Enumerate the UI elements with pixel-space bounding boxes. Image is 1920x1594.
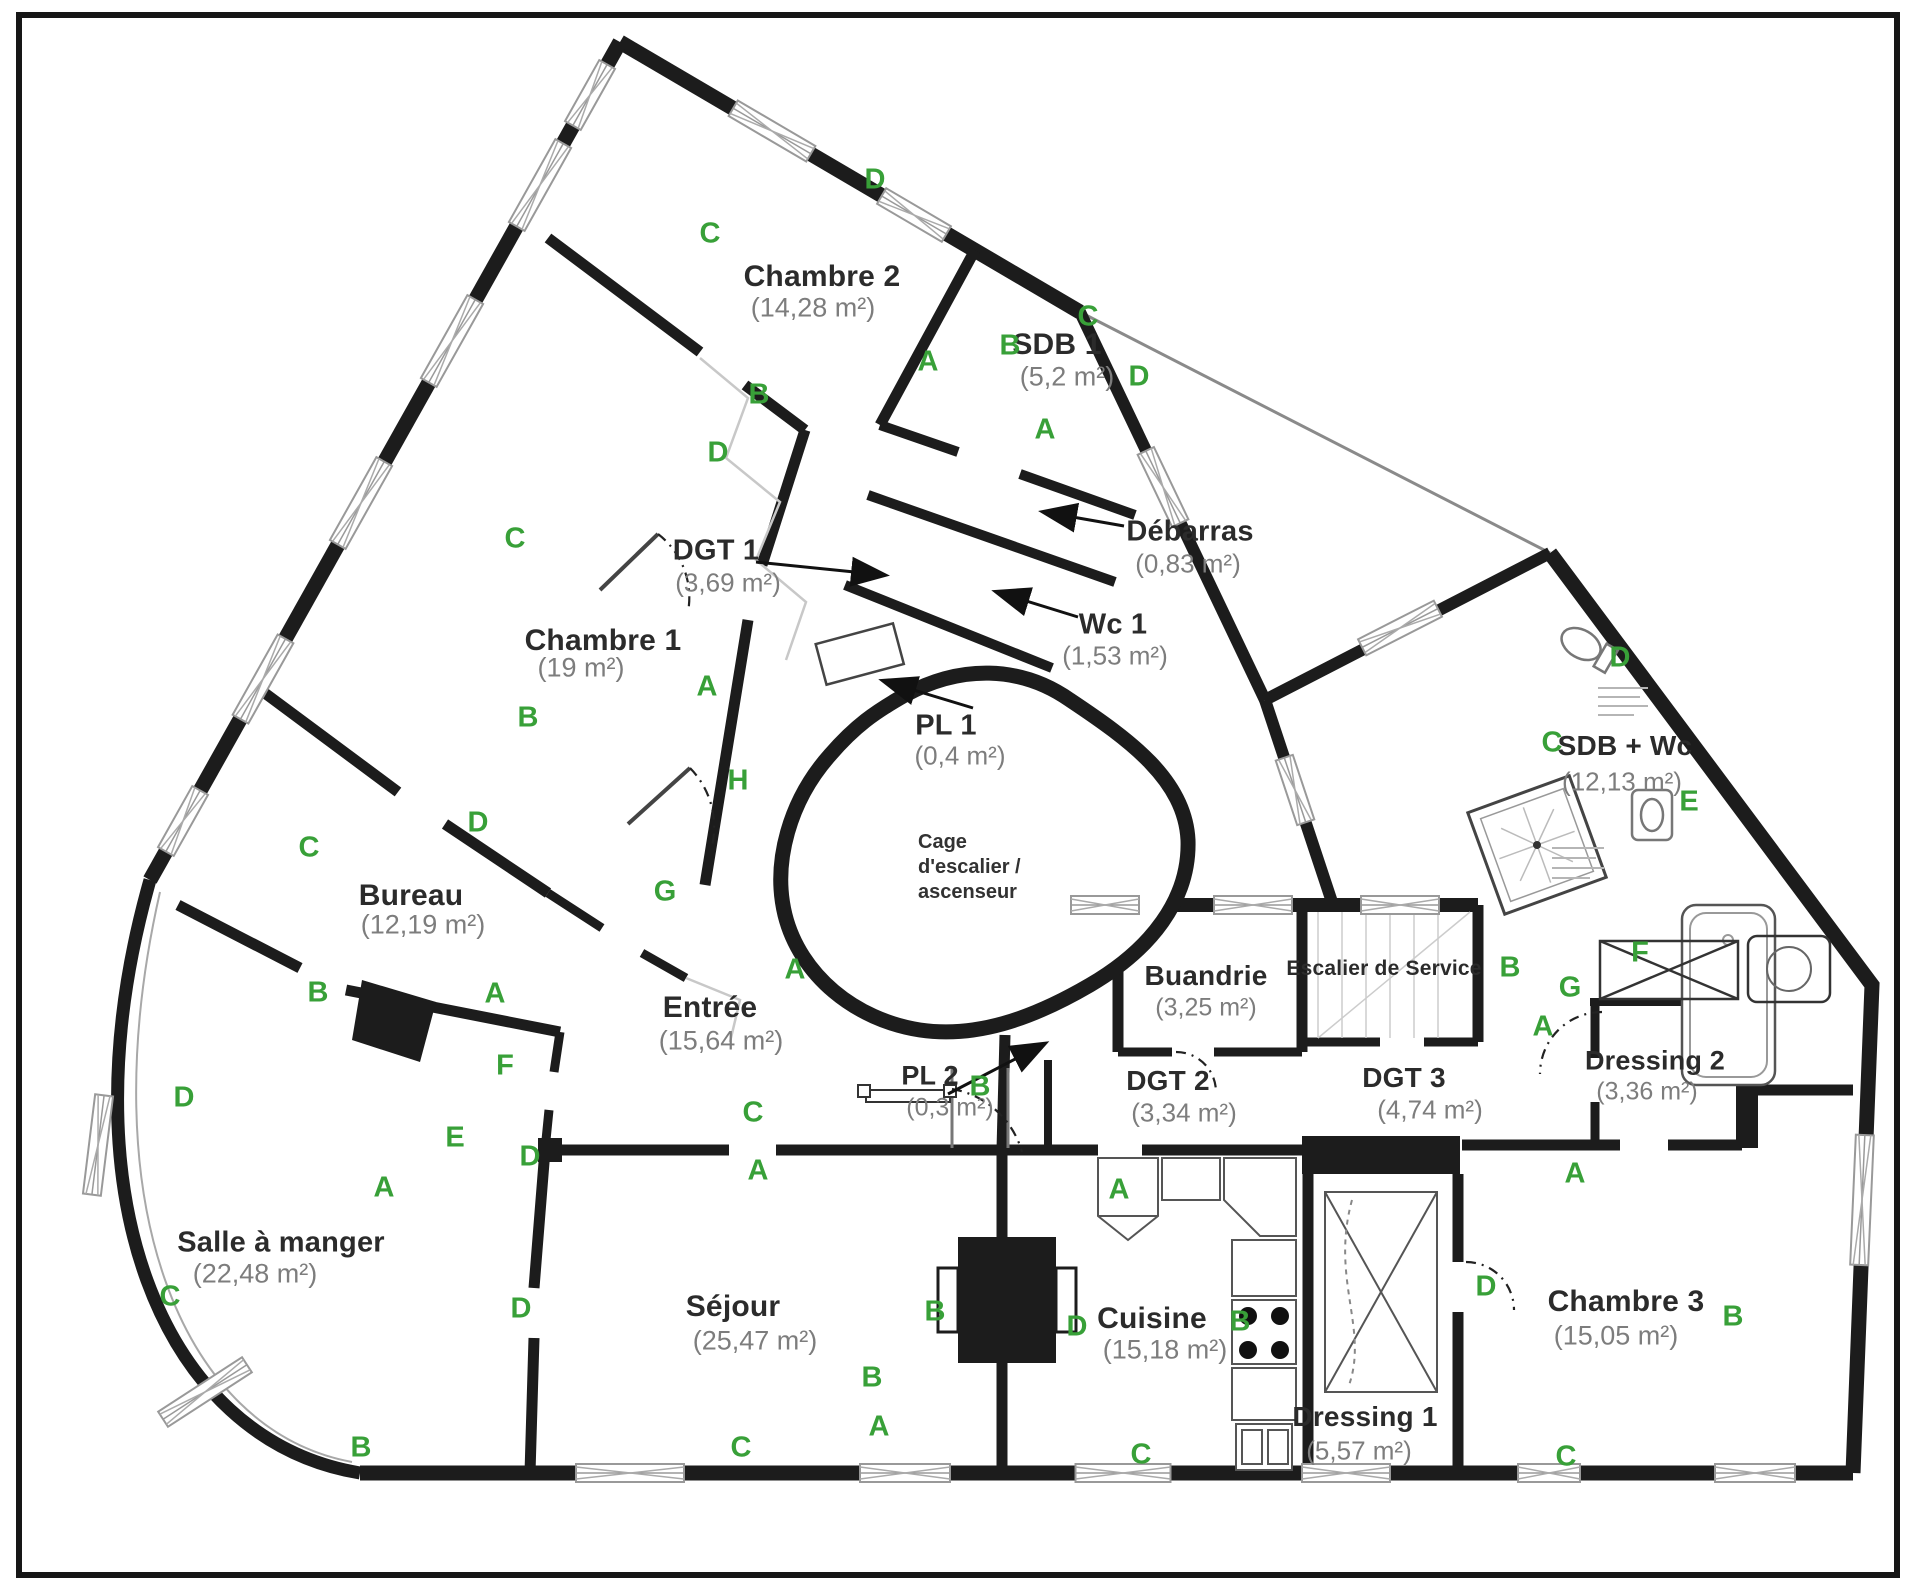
room-label-wc-1: Wc 1 [1079, 609, 1148, 642]
wall-letter-b-47: B [1723, 1301, 1744, 1334]
wall-letter-d-26: D [511, 1293, 532, 1326]
wall-letter-d-21: D [520, 1141, 541, 1174]
wall-letter-c-27: C [731, 1432, 752, 1465]
wall-letter-f-19: F [496, 1050, 514, 1083]
wall-letter-d-13: D [468, 807, 489, 840]
room-area-dgt-1: (3,69 m²) [675, 568, 780, 599]
wall-letter-a-16: A [785, 954, 806, 987]
room-area-sdb-1: (5,2 m²) [1020, 362, 1115, 393]
room-label-salle-a-manger: Salle à manger [177, 1227, 385, 1260]
room-area-dgt-3: (4,74 m²) [1377, 1095, 1482, 1126]
room-label-chambre-2: Chambre 2 [744, 260, 901, 294]
wall-letter-g-15: G [654, 876, 677, 909]
room-area-bureau: (12,19 m²) [361, 910, 486, 941]
wall-letter-d-8: D [708, 437, 729, 470]
room-label-dressing-1: Dressing 1 [1292, 1401, 1437, 1433]
wall-letter-b-30: B [925, 1296, 946, 1329]
room-area-buandrie: (3,25 m²) [1155, 994, 1256, 1023]
wall-letter-a-29: A [869, 1411, 890, 1444]
room-label-escalier-service: Escalier de Service [1286, 957, 1481, 981]
wall-letter-a-45: A [1565, 1158, 1586, 1191]
room-area-sejour: (25,47 m²) [693, 1326, 818, 1357]
room-area-salle-a-manger: (22,48 m²) [193, 1259, 318, 1290]
wall-letter-a-32: A [748, 1155, 769, 1188]
room-label-pl-2: PL 2 [901, 1061, 958, 1092]
wall-letter-a-34: A [1109, 1174, 1130, 1207]
room-label-dgt-2: DGT 2 [1126, 1065, 1209, 1097]
stair-core-label-line: d'escalier / [918, 855, 1021, 880]
room-area-chambre-3: (15,05 m²) [1554, 1321, 1679, 1352]
room-area-debarras: (0,83 m²) [1135, 549, 1240, 580]
wall-letter-e-44: E [1679, 786, 1698, 819]
room-label-entree: Entrée [663, 991, 758, 1025]
wall-letter-a-18: A [485, 978, 506, 1011]
room-label-sejour: Séjour [686, 1290, 781, 1324]
wall-letter-c-4: C [1078, 301, 1099, 334]
room-label-pl-1: PL 1 [915, 710, 977, 743]
room-area-sdb-wc: (12,13 m²) [1562, 767, 1682, 798]
wall-letter-f-41: F [1631, 937, 1649, 970]
wall-letter-b-38: B [1500, 952, 1521, 985]
room-label-sdb-wc: SDB + Wc [1558, 730, 1693, 762]
room-label-debarras: Débarras [1126, 516, 1253, 549]
wall-letter-d-43: D [1610, 642, 1631, 675]
wall-letter-b-33: B [970, 1071, 991, 1104]
wall-letter-d-46: D [1476, 1271, 1497, 1304]
wall-letter-c-42: C [1542, 727, 1563, 760]
wall-letter-d-35: D [1067, 1311, 1088, 1344]
wall-letter-b-11: B [518, 702, 539, 735]
room-label-dgt-3: DGT 3 [1362, 1062, 1445, 1094]
wall-letter-e-20: E [445, 1122, 464, 1155]
wall-letter-b-36: B [1230, 1306, 1251, 1339]
wall-letter-g-39: G [1559, 972, 1582, 1005]
wall-letter-c-48: C [1556, 1441, 1577, 1474]
wall-letter-c-1: C [700, 218, 721, 251]
wall-letter-b-5: B [1000, 330, 1021, 363]
wall-letter-d-0: D [865, 164, 886, 197]
wall-letter-d-6: D [1129, 361, 1150, 394]
label-layer: Chambre 2(14,28 m²)SDB 1(5,2 m²)Débarras… [0, 0, 1920, 1594]
stair-core-label: Caged'escalier /ascenseur [918, 830, 1021, 905]
wall-letter-c-14: C [299, 832, 320, 865]
stair-core-label-line: ascenseur [918, 880, 1021, 905]
wall-letter-c-37: C [1131, 1439, 1152, 1472]
room-label-dressing-2: Dressing 2 [1585, 1046, 1725, 1077]
room-area-dgt-2: (3,34 m²) [1131, 1098, 1236, 1129]
wall-letter-c-24: C [160, 1281, 181, 1314]
room-area-dressing-2: (3,36 m²) [1596, 1078, 1697, 1107]
wall-letter-a-7: A [1035, 414, 1056, 447]
room-area-pl-1: (0,4 m²) [915, 741, 1006, 772]
room-area-entree: (15,64 m²) [659, 1026, 784, 1057]
wall-letter-a-2: A [918, 346, 939, 379]
wall-letter-a-22: A [374, 1172, 395, 1205]
room-label-cuisine: Cuisine [1097, 1302, 1207, 1336]
wall-letter-b-3: B [749, 379, 770, 412]
room-area-dressing-1: (5,57 m²) [1306, 1436, 1411, 1467]
wall-letter-b-28: B [862, 1362, 883, 1395]
room-label-dgt-1: DGT 1 [673, 535, 759, 568]
wall-letter-a-40: A [1533, 1011, 1554, 1044]
wall-letter-d-23: D [174, 1082, 195, 1115]
wall-letter-a-10: A [697, 671, 718, 704]
wall-letter-b-17: B [308, 977, 329, 1010]
wall-letter-b-25: B [351, 1432, 372, 1465]
room-area-cuisine: (15,18 m²) [1103, 1335, 1228, 1366]
room-label-chambre-3: Chambre 3 [1548, 1285, 1705, 1319]
room-area-chambre-2: (14,28 m²) [751, 293, 876, 324]
wall-letter-c-9: C [505, 523, 526, 556]
room-label-bureau: Bureau [359, 879, 464, 913]
floorplan-canvas: Chambre 2(14,28 m²)SDB 1(5,2 m²)Débarras… [0, 0, 1920, 1594]
stair-core-label-line: Cage [918, 830, 1021, 855]
room-area-chambre-1: (19 m²) [538, 653, 625, 684]
room-label-buandrie: Buandrie [1145, 960, 1268, 992]
room-area-wc-1: (1,53 m²) [1062, 641, 1167, 672]
wall-letter-h-12: H [728, 765, 749, 798]
wall-letter-c-31: C [743, 1097, 764, 1130]
